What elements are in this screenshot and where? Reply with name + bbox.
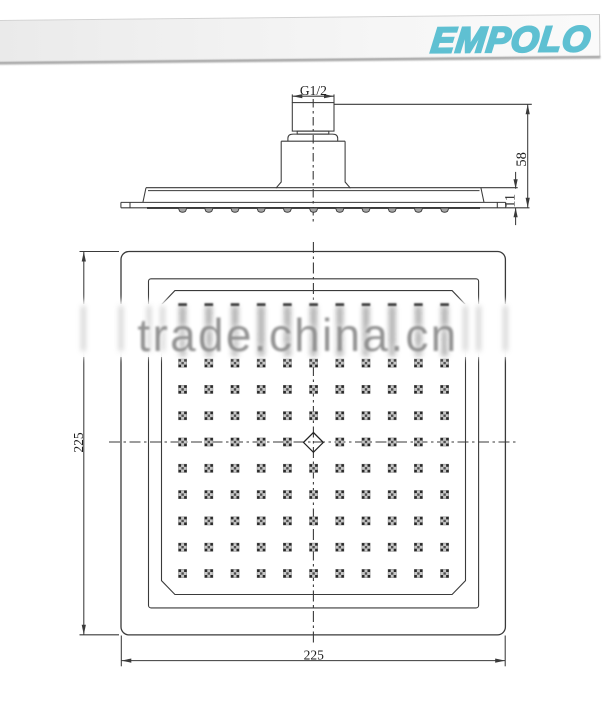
svg-text:11: 11 <box>503 194 519 208</box>
svg-text:trade.china.cn: trade.china.cn <box>137 309 458 361</box>
svg-text:G1/2: G1/2 <box>300 83 327 98</box>
svg-text:225: 225 <box>71 432 86 453</box>
svg-text:58: 58 <box>514 152 530 167</box>
svg-text:225: 225 <box>304 647 325 662</box>
